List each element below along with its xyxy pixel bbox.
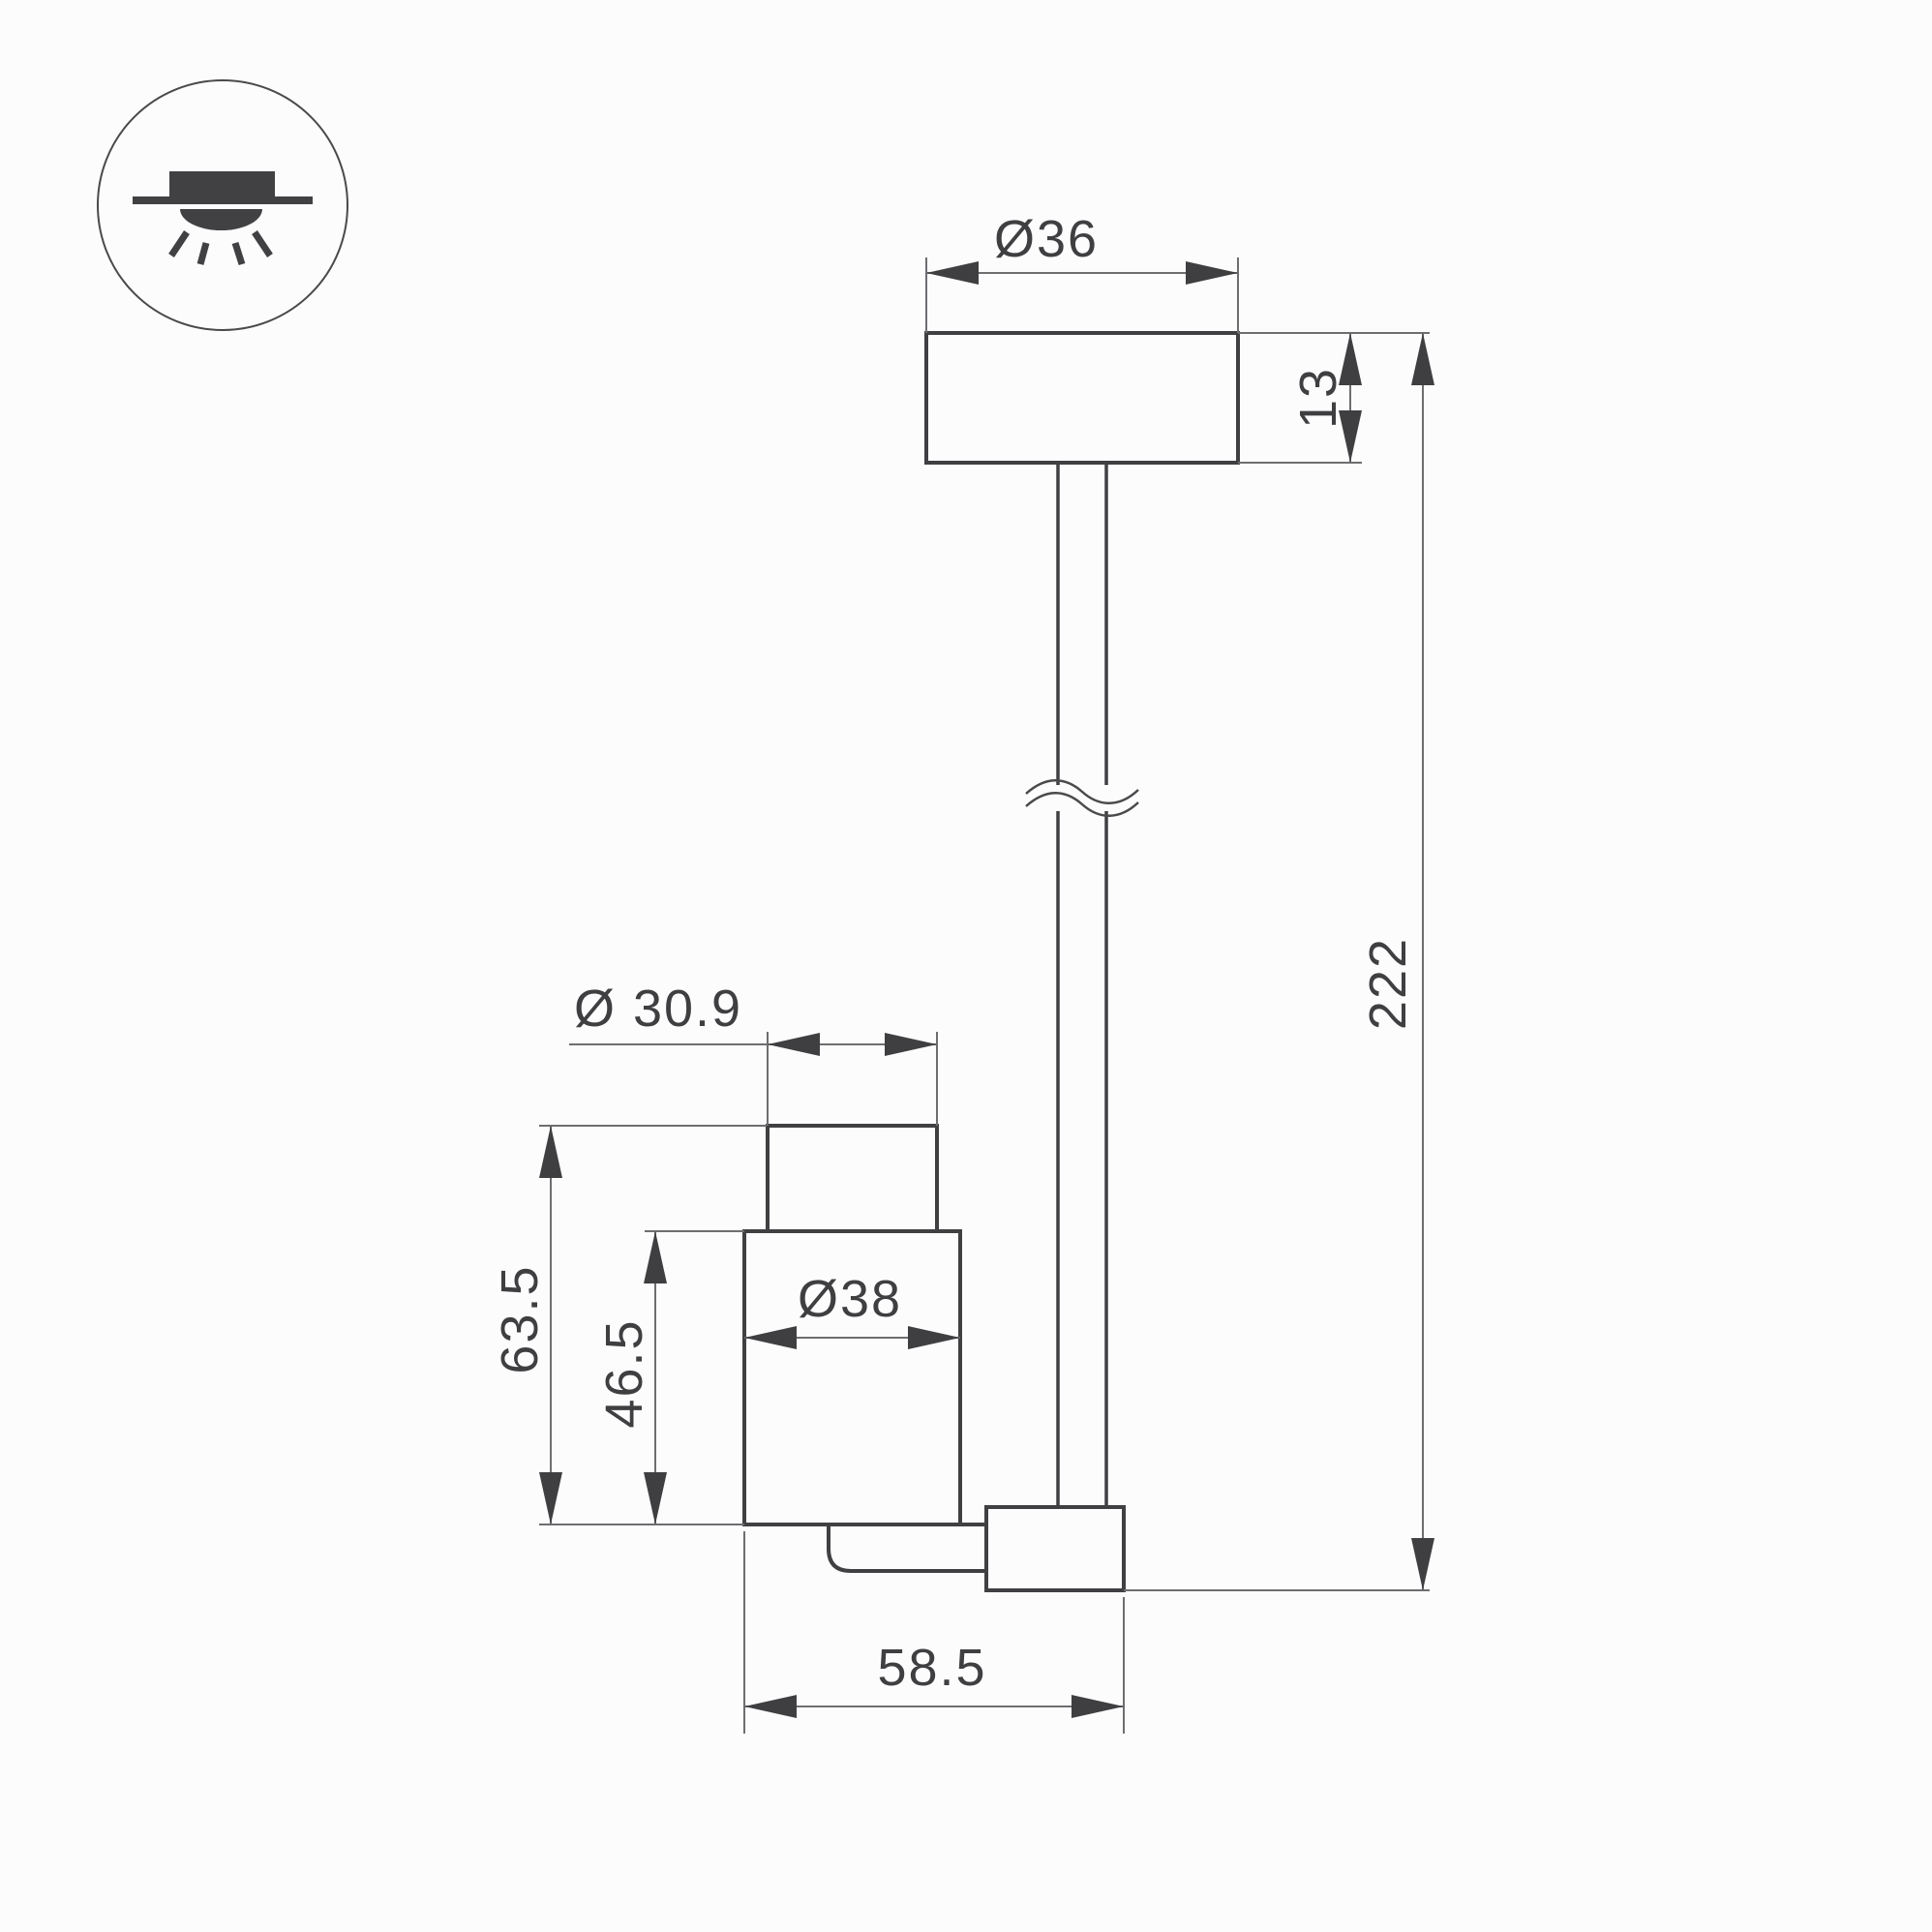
icon-ray-2 — [200, 243, 206, 264]
mount-type-icon — [98, 80, 347, 330]
dim-label-head-body-height: 46.5 — [595, 1318, 653, 1428]
dim-label-head-total-height: 63.5 — [491, 1264, 549, 1374]
elbow-arm-bottom — [829, 1524, 986, 1571]
dim-overall-height: 222 — [1124, 333, 1434, 1590]
icon-ceiling-line — [133, 196, 313, 204]
dim-arrow-right — [1186, 261, 1238, 285]
icon-light-rays — [171, 232, 270, 264]
icon-ray-1 — [171, 232, 187, 256]
head-top-cylinder — [768, 1126, 937, 1231]
dim-canopy-height: 13 — [1238, 333, 1430, 463]
dim-arrow-down — [1411, 1538, 1434, 1590]
dim-arrow-right — [1072, 1695, 1124, 1718]
dim-arrow-left — [744, 1695, 797, 1718]
dim-arrow-up — [1411, 333, 1434, 385]
technical-drawing-page: Ø36 13 222 Ø 30.9 — [0, 0, 1932, 1932]
dim-label-head-body-diameter: Ø38 — [798, 1270, 902, 1328]
icon-circle-border — [98, 80, 347, 330]
icon-ray-3 — [235, 243, 242, 264]
dim-label-head-top-diameter: Ø 30.9 — [574, 980, 742, 1038]
dim-arrow-down — [539, 1472, 562, 1524]
dim-arrow-up — [539, 1126, 562, 1178]
canopy-rect — [926, 333, 1238, 463]
dim-arrow-up — [644, 1231, 667, 1283]
icon-light-dome — [180, 209, 262, 230]
dim-arrow-right — [885, 1033, 937, 1056]
dim-canopy-diameter: Ø36 — [926, 210, 1238, 333]
dim-arrow-down — [644, 1472, 667, 1524]
dim-arrow-left — [768, 1033, 820, 1056]
fixture-outline — [744, 333, 1238, 1590]
dim-label-head-offset-width: 58.5 — [877, 1639, 986, 1697]
dim-head-top-diameter: Ø 30.9 — [569, 980, 937, 1126]
dim-label-canopy-diameter: Ø36 — [994, 210, 1099, 268]
dim-label-canopy-height: 13 — [1289, 367, 1347, 429]
dimension-drawing: Ø36 13 222 Ø 30.9 — [0, 0, 1932, 1932]
rod-connector-block — [986, 1507, 1124, 1590]
dim-head-body-height: 46.5 — [595, 1231, 744, 1524]
rod-break-gap — [1048, 785, 1116, 811]
icon-ray-4 — [255, 232, 270, 256]
icon-lamp-housing — [169, 171, 275, 197]
dim-label-overall-height: 222 — [1359, 937, 1417, 1030]
dim-arrow-left — [926, 261, 979, 285]
